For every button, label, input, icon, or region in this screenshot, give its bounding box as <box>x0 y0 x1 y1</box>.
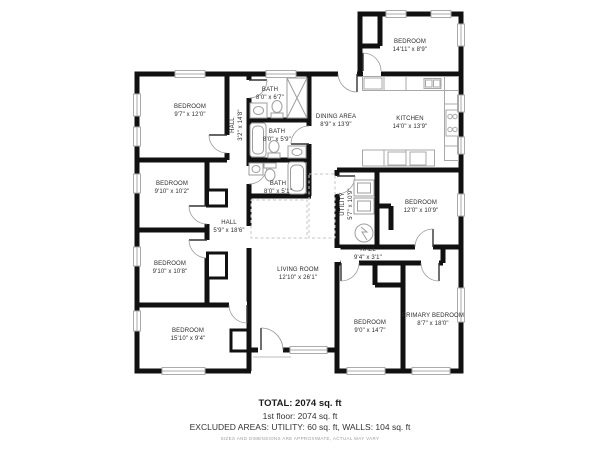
closets-layer <box>208 190 249 351</box>
room-name: UTILITY <box>339 188 347 219</box>
room-name: BATH <box>264 180 292 188</box>
room-dims: 5'9" x 18'6" <box>213 227 244 235</box>
room-name: BEDROOM <box>174 103 206 111</box>
sink <box>288 146 306 158</box>
room-label-bedroom-right: BEDROOM 12'0" x 10'9" <box>404 199 439 215</box>
sink <box>249 163 263 175</box>
stove <box>446 110 459 136</box>
total-area: TOTAL: 2074 sq. ft <box>0 398 600 409</box>
dryer <box>354 198 374 214</box>
room-dims: 8'0" x 6'7" <box>256 94 284 102</box>
shower <box>287 78 307 118</box>
room-dims: 9'0" x 14'7" <box>354 327 386 335</box>
room-label-kitchen: KITCHEN 14'0" x 13'9" <box>393 115 428 131</box>
room-dims: 14'0" x 13'9" <box>393 123 428 131</box>
room-dims: 9'10" x 10'8" <box>153 268 188 276</box>
room-name: HALL <box>354 246 382 254</box>
room-dims: 8'0" x 5'1" <box>264 188 292 196</box>
room-name: BEDROOM <box>354 319 386 327</box>
room-name: LIVING ROOM <box>277 266 319 274</box>
room-label-bedroom-top-right: BEDROOM 14'11" x 8'9" <box>393 38 427 54</box>
first-floor-area: 1st floor: 2074 sq. ft <box>0 411 600 421</box>
room-label-bath-1: BATH 8'0" x 6'7" <box>256 86 284 102</box>
sink <box>250 103 267 118</box>
floor-plan-drawing <box>0 0 600 450</box>
room-name: BATH <box>256 86 284 94</box>
toilet <box>264 163 276 181</box>
room-dims: 8'9" x 13'9" <box>316 121 356 129</box>
room-label-bedroom-bottom-left: BEDROOM 15'10" x 9'4" <box>171 327 206 343</box>
room-dims: 3'2" x 14'8" <box>237 109 245 140</box>
room-dims: 9'10" x 10'2" <box>155 188 190 196</box>
room-label-primary-bedroom: PRIMARY BEDROOM 8'7" x 18'0" <box>402 312 464 328</box>
room-label-hall-right: HALL 9'4" x 3'1" <box>354 246 382 262</box>
room-name: BEDROOM <box>404 199 439 207</box>
plan-summary: TOTAL: 2074 sq. ft 1st floor: 2074 sq. f… <box>0 398 600 441</box>
disclaimer-note: SIZES AND DIMENSIONS ARE APPROXIMATE, AC… <box>0 436 600 441</box>
room-label-bedroom-mid-left: BEDROOM 9'10" x 10'2" <box>155 180 190 196</box>
room-name: BEDROOM <box>155 180 190 188</box>
room-dims: 12'0" x 10'9" <box>404 207 439 215</box>
room-label-bath-3: BATH 8'0" x 5'1" <box>264 180 292 196</box>
room-label-hall-upper: HALL 3'2" x 14'8" <box>229 109 245 140</box>
room-label-bedroom-bottom-right: BEDROOM 9'0" x 14'7" <box>354 319 386 335</box>
room-name: HALL <box>213 219 244 227</box>
room-dims: 14'11" x 8'9" <box>393 46 427 54</box>
closet <box>208 253 227 278</box>
room-name: BEDROOM <box>153 260 188 268</box>
room-dims: 5'7" x 10'9" <box>347 188 355 219</box>
room-name: PRIMARY BEDROOM <box>402 312 464 320</box>
room-name: BEDROOM <box>171 327 206 335</box>
room-dims: 9'4" x 3'1" <box>354 254 382 262</box>
room-dims: 8'7" x 18'0" <box>402 320 464 328</box>
room-label-dining-area: DINING AREA 8'9" x 13'9" <box>316 113 356 129</box>
room-label-bedroom-upper-left: BEDROOM 9'7" x 12'0" <box>174 103 206 119</box>
room-label-living-room: LIVING ROOM 12'10" x 26'1" <box>277 266 319 282</box>
room-label-utility: UTILITY 5'7" x 10'9" <box>339 188 355 219</box>
excluded-areas: EXCLUDED AREAS: UTILITY: 60 sq. ft, WALL… <box>0 422 600 432</box>
closet <box>208 190 227 206</box>
room-name: DINING AREA <box>316 113 356 121</box>
room-name: BEDROOM <box>393 38 427 46</box>
room-label-bath-2: BATH 8'0" x 5'9" <box>263 128 291 144</box>
room-dims: 15'10" x 9'4" <box>171 335 206 343</box>
washer <box>354 180 374 196</box>
room-label-bedroom-lower-left: BEDROOM 9'10" x 10'8" <box>153 260 188 276</box>
room-label-hall-center: HALL 5'9" x 18'6" <box>213 219 244 235</box>
kitchen-sink <box>424 79 441 89</box>
toilet <box>271 101 283 119</box>
room-dims: 8'0" x 5'9" <box>263 136 291 144</box>
room-dims: 12'10" x 26'1" <box>277 274 319 282</box>
room-dims: 9'7" x 12'0" <box>174 111 206 119</box>
room-name: HALL <box>229 109 237 140</box>
utility-fixtures <box>354 180 374 242</box>
room-name: KITCHEN <box>393 115 428 123</box>
closet <box>231 330 248 351</box>
water-heater <box>355 224 373 242</box>
room-name: BATH <box>263 128 291 136</box>
floorplan-canvas: BEDROOM 14'11" x 8'9" BEDROOM 9'7" x 12'… <box>0 0 600 450</box>
